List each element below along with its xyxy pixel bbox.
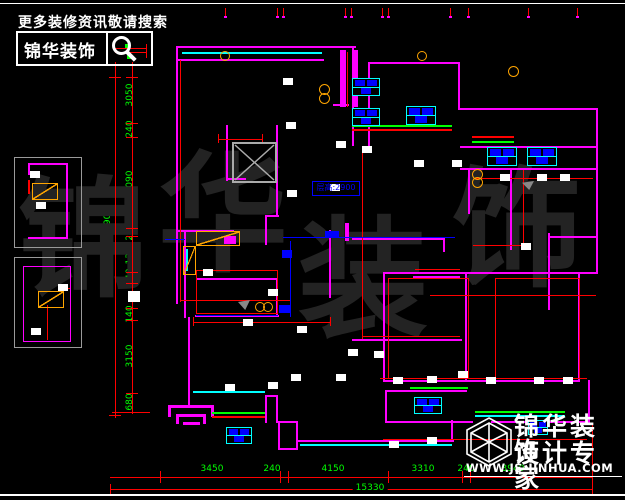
window-pane: [229, 429, 238, 435]
wall-segment: [443, 238, 445, 252]
label-block: [427, 376, 437, 383]
wall-segment: [468, 168, 470, 214]
dimension-tick: [126, 228, 138, 229]
label-block: [243, 319, 253, 326]
wiring-dimension-line: [218, 139, 262, 140]
window-pane: [422, 108, 433, 114]
wall-segment: [458, 62, 460, 110]
window-pane: [429, 399, 439, 405]
wall-segment: [329, 230, 331, 298]
label-block: [291, 374, 301, 381]
wiring-dimension-line: [212, 416, 265, 418]
wall-segment: [578, 272, 598, 274]
dimension-tick: [126, 137, 138, 138]
tick-dot: [467, 16, 470, 18]
wall-segment: [176, 414, 206, 417]
wiring-dimension-line: [362, 146, 363, 339]
search-box: 锦华装饰: [16, 31, 153, 66]
dimension-tick: [126, 77, 138, 78]
wall-segment: [387, 390, 467, 392]
wall-segment: [352, 238, 444, 240]
wall-segment: [176, 46, 178, 304]
dimension-tick: [126, 320, 138, 321]
window-pane: [490, 149, 501, 155]
label-block: [348, 349, 358, 356]
wiring-dimension-line: [110, 484, 111, 494]
cube-logo-icon: [463, 415, 515, 467]
railing-line: [410, 387, 468, 389]
wiring-dimension-line: [218, 134, 219, 143]
label-block: [362, 146, 372, 153]
dimension-tick: [126, 308, 138, 309]
border-line: [0, 3, 625, 4]
water-line: [283, 237, 455, 238]
wiring-dimension-line: [523, 170, 524, 250]
wall-segment: [345, 223, 349, 241]
appliance-symbol: [183, 246, 196, 275]
window-pane: [367, 110, 377, 116]
floor-height-annotation: 层高:2900: [312, 181, 360, 196]
plumbing-riser-icon: [472, 177, 483, 188]
dimension-tick: [462, 471, 463, 483]
label-block: [452, 160, 462, 167]
label-block: [521, 243, 531, 250]
window-pane: [503, 149, 514, 155]
wall-segment: [183, 422, 200, 425]
wiring-dimension-line: [472, 136, 514, 138]
window-symbol: [487, 147, 517, 166]
footer-website: WWW.JS-JINHUA.COM: [466, 461, 613, 475]
window-symbol: [527, 147, 557, 166]
wiring-dimension-line: [475, 178, 593, 179]
label-block: [36, 202, 46, 209]
wall-segment: [176, 59, 324, 61]
wiring-dimension-line: [330, 317, 331, 326]
tick-dot: [344, 16, 347, 18]
window-symbol: [226, 427, 252, 444]
wiring-dimension-line: [132, 62, 133, 414]
brand-label: 锦华装饰: [24, 37, 96, 62]
water-fixture: [279, 305, 290, 313]
wall-segment: [368, 62, 460, 64]
dimension-total-label: 15330: [353, 483, 388, 493]
water-fixture: [282, 250, 292, 258]
label-block: [283, 78, 293, 85]
window-pane: [355, 110, 365, 116]
window-line: [193, 391, 265, 393]
window-symbol: [352, 108, 380, 126]
dimension-tick: [288, 471, 289, 483]
wall-segment: [296, 421, 298, 450]
dimension-tick: [388, 471, 389, 483]
wall-segment: [383, 380, 580, 382]
wall-segment: [385, 390, 387, 423]
dimension-tick: [126, 123, 138, 124]
label-block: [286, 122, 296, 129]
window-mullion: [227, 435, 251, 436]
label-block: [203, 269, 213, 276]
dimension-label: 3150: [125, 345, 135, 368]
wall-segment: [276, 397, 278, 423]
wall-segment: [278, 421, 280, 450]
tick-dot: [387, 16, 390, 18]
railing-line: [472, 141, 514, 143]
wiring-loop: [388, 278, 469, 379]
window-line: [182, 52, 322, 54]
tick-dot: [224, 16, 227, 18]
dimension-tick: [109, 415, 121, 416]
tick-dot: [449, 16, 452, 18]
wall-segment: [278, 448, 298, 450]
wall-segment: [278, 421, 298, 423]
label-block: [458, 371, 468, 378]
label-block: [537, 174, 547, 181]
plumbing-riser-icon: [508, 66, 519, 77]
wall-segment: [168, 405, 171, 417]
label-block: [500, 174, 510, 181]
tick-dot: [350, 16, 353, 18]
border-line: [128, 291, 140, 302]
wall-segment: [510, 168, 512, 250]
dimension-tick: [280, 471, 281, 483]
railing-line: [212, 412, 265, 414]
label-block: [563, 377, 573, 384]
wall-segment: [383, 272, 385, 382]
wall-segment: [168, 405, 214, 408]
window-pane: [417, 399, 427, 405]
dimension-tick: [126, 236, 138, 237]
water-line: [196, 315, 278, 316]
window-mullion: [488, 156, 516, 157]
dimension-tick: [126, 272, 138, 273]
plumbing-riser-icon: [263, 302, 273, 312]
wiring-dimension-line: [180, 60, 181, 302]
dimension-label: 240: [263, 464, 280, 474]
window-pane: [530, 149, 541, 155]
wiring-dimension-line: [115, 62, 116, 418]
dimension-label: 3050: [125, 84, 135, 107]
water-fixture: [325, 231, 339, 237]
wall-segment: [383, 272, 580, 274]
wall-segment: [340, 50, 346, 107]
wiring-loop: [495, 278, 580, 379]
wall-segment: [176, 414, 179, 424]
wall-segment: [385, 421, 473, 423]
dimension-tick: [160, 471, 161, 483]
label-block: [287, 190, 297, 197]
window-mullion: [407, 115, 435, 116]
tick-dot: [381, 16, 384, 18]
window-mullion: [415, 405, 441, 406]
wall-segment: [265, 215, 279, 217]
label-block: [393, 377, 403, 384]
footer-underline: [464, 476, 622, 477]
label-block: [336, 141, 346, 148]
wall-segment: [368, 62, 370, 146]
label-block: [336, 374, 346, 381]
dimension-tick: [109, 77, 121, 78]
divider: [106, 33, 108, 64]
window-symbol: [414, 397, 442, 414]
wiring-dimension-line: [352, 129, 452, 131]
window-pane: [355, 80, 365, 86]
wall-segment: [203, 414, 206, 424]
window-pane: [415, 116, 426, 122]
window-pane: [496, 157, 507, 163]
window-pane: [234, 436, 244, 442]
window-pane: [423, 406, 433, 412]
dimension-tick: [126, 283, 138, 284]
window-mullion: [528, 156, 556, 157]
dimension-label: 3450: [201, 464, 224, 474]
label-block: [297, 326, 307, 333]
dimension-label: 680: [125, 393, 135, 410]
wall-segment: [226, 125, 228, 181]
label-block: [374, 351, 384, 358]
window-mullion: [353, 87, 379, 88]
window-pane: [536, 157, 547, 163]
appliance-symbol: [38, 291, 64, 308]
wiring-dimension-line: [347, 52, 348, 107]
label-block: [31, 328, 41, 335]
window-pane: [361, 118, 371, 124]
wall-segment: [176, 46, 356, 48]
dimension-label: 3310: [412, 464, 435, 474]
tick-dot: [527, 16, 530, 18]
label-block: [268, 289, 278, 296]
wall-segment: [265, 215, 267, 245]
promo-text: 更多装修资讯敬请搜索: [18, 12, 168, 32]
window-pane: [543, 149, 554, 155]
wall-segment: [596, 108, 598, 274]
wiring-dimension-line: [193, 322, 331, 323]
window-symbol: [352, 78, 380, 96]
label-block: [30, 171, 40, 178]
wiring-dimension-line: [193, 317, 194, 326]
wall-segment: [352, 46, 354, 146]
window-line: [300, 444, 452, 446]
legend-box: [14, 157, 82, 248]
window-mullion: [353, 117, 379, 118]
tick-dot: [282, 16, 285, 18]
border-line: [0, 494, 625, 496]
appliance-symbol: [196, 231, 240, 246]
tick-dot: [576, 16, 579, 18]
label-block: [225, 384, 235, 391]
elevator-x-icon: [234, 144, 275, 181]
window-pane: [367, 80, 377, 86]
plumbing-riser-icon: [319, 93, 330, 104]
magnifier-handle-icon: [125, 50, 136, 61]
window-pane: [240, 429, 249, 435]
dimension-tick: [126, 412, 138, 413]
window-symbol: [406, 106, 436, 125]
label-block: [389, 441, 399, 448]
plumbing-riser-icon: [220, 51, 230, 61]
dimension-label: 4150: [322, 464, 345, 474]
label-block: [486, 377, 496, 384]
wall-segment: [188, 317, 190, 407]
label-block: [534, 377, 544, 384]
label-block: [58, 284, 68, 291]
label-block: [427, 437, 437, 444]
label-block: [560, 174, 570, 181]
wiring-dimension-line: [415, 269, 460, 270]
cad-floorplan-canvas: 锦 华 装 饰 层高:2900 更多装修资讯敬请搜索 锦华装饰 3450 240…: [0, 0, 625, 500]
label-block: [414, 160, 424, 167]
water-line: [165, 239, 185, 240]
wall-segment: [458, 108, 598, 110]
dimension-tick: [126, 393, 138, 394]
wall-segment: [265, 395, 267, 423]
window-pane: [361, 88, 371, 94]
wall-segment: [548, 236, 598, 238]
appliance-symbol: [32, 183, 58, 200]
elevator-shaft: [232, 142, 277, 183]
tick-dot: [276, 16, 279, 18]
label-block: [268, 382, 278, 389]
window-pane: [409, 108, 420, 114]
plumbing-riser-icon: [417, 51, 427, 61]
